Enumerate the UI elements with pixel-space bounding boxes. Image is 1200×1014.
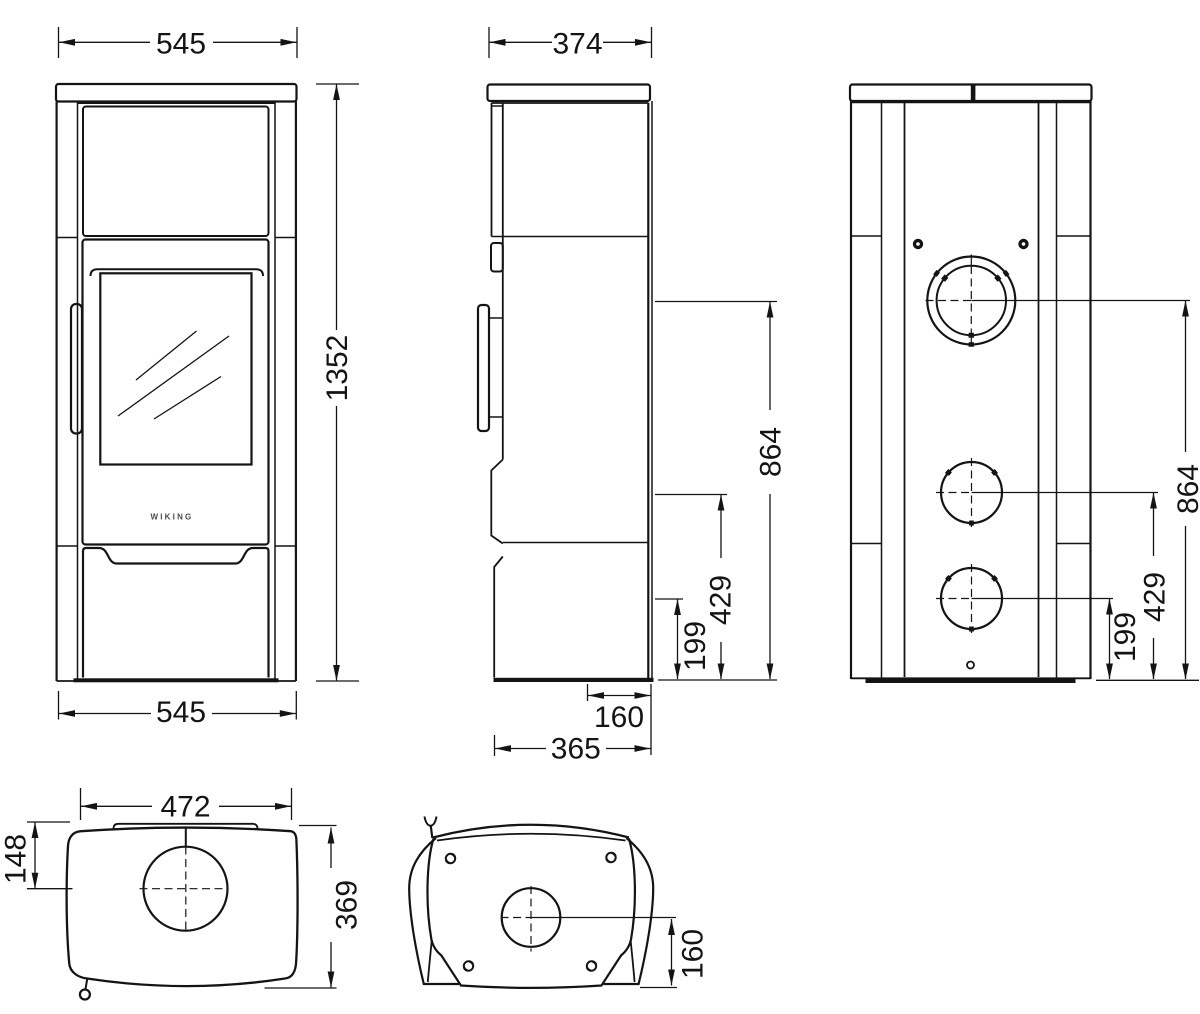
svg-text:369: 369 bbox=[331, 880, 364, 930]
svg-text:160: 160 bbox=[594, 701, 644, 734]
svg-text:864: 864 bbox=[1172, 464, 1200, 514]
svg-text:864: 864 bbox=[755, 427, 788, 477]
svg-text:160: 160 bbox=[677, 929, 710, 979]
svg-text:545: 545 bbox=[156, 28, 206, 61]
svg-text:429: 429 bbox=[1139, 572, 1172, 622]
svg-text:1352: 1352 bbox=[321, 335, 354, 402]
svg-text:148: 148 bbox=[0, 834, 33, 884]
svg-text:WIKING: WIKING bbox=[151, 513, 194, 522]
svg-text:472: 472 bbox=[160, 791, 210, 824]
svg-text:365: 365 bbox=[551, 733, 601, 766]
svg-text:199: 199 bbox=[679, 621, 712, 671]
svg-text:545: 545 bbox=[156, 696, 206, 729]
svg-text:429: 429 bbox=[705, 575, 738, 625]
svg-text:374: 374 bbox=[552, 28, 602, 61]
svg-text:199: 199 bbox=[1109, 612, 1142, 662]
